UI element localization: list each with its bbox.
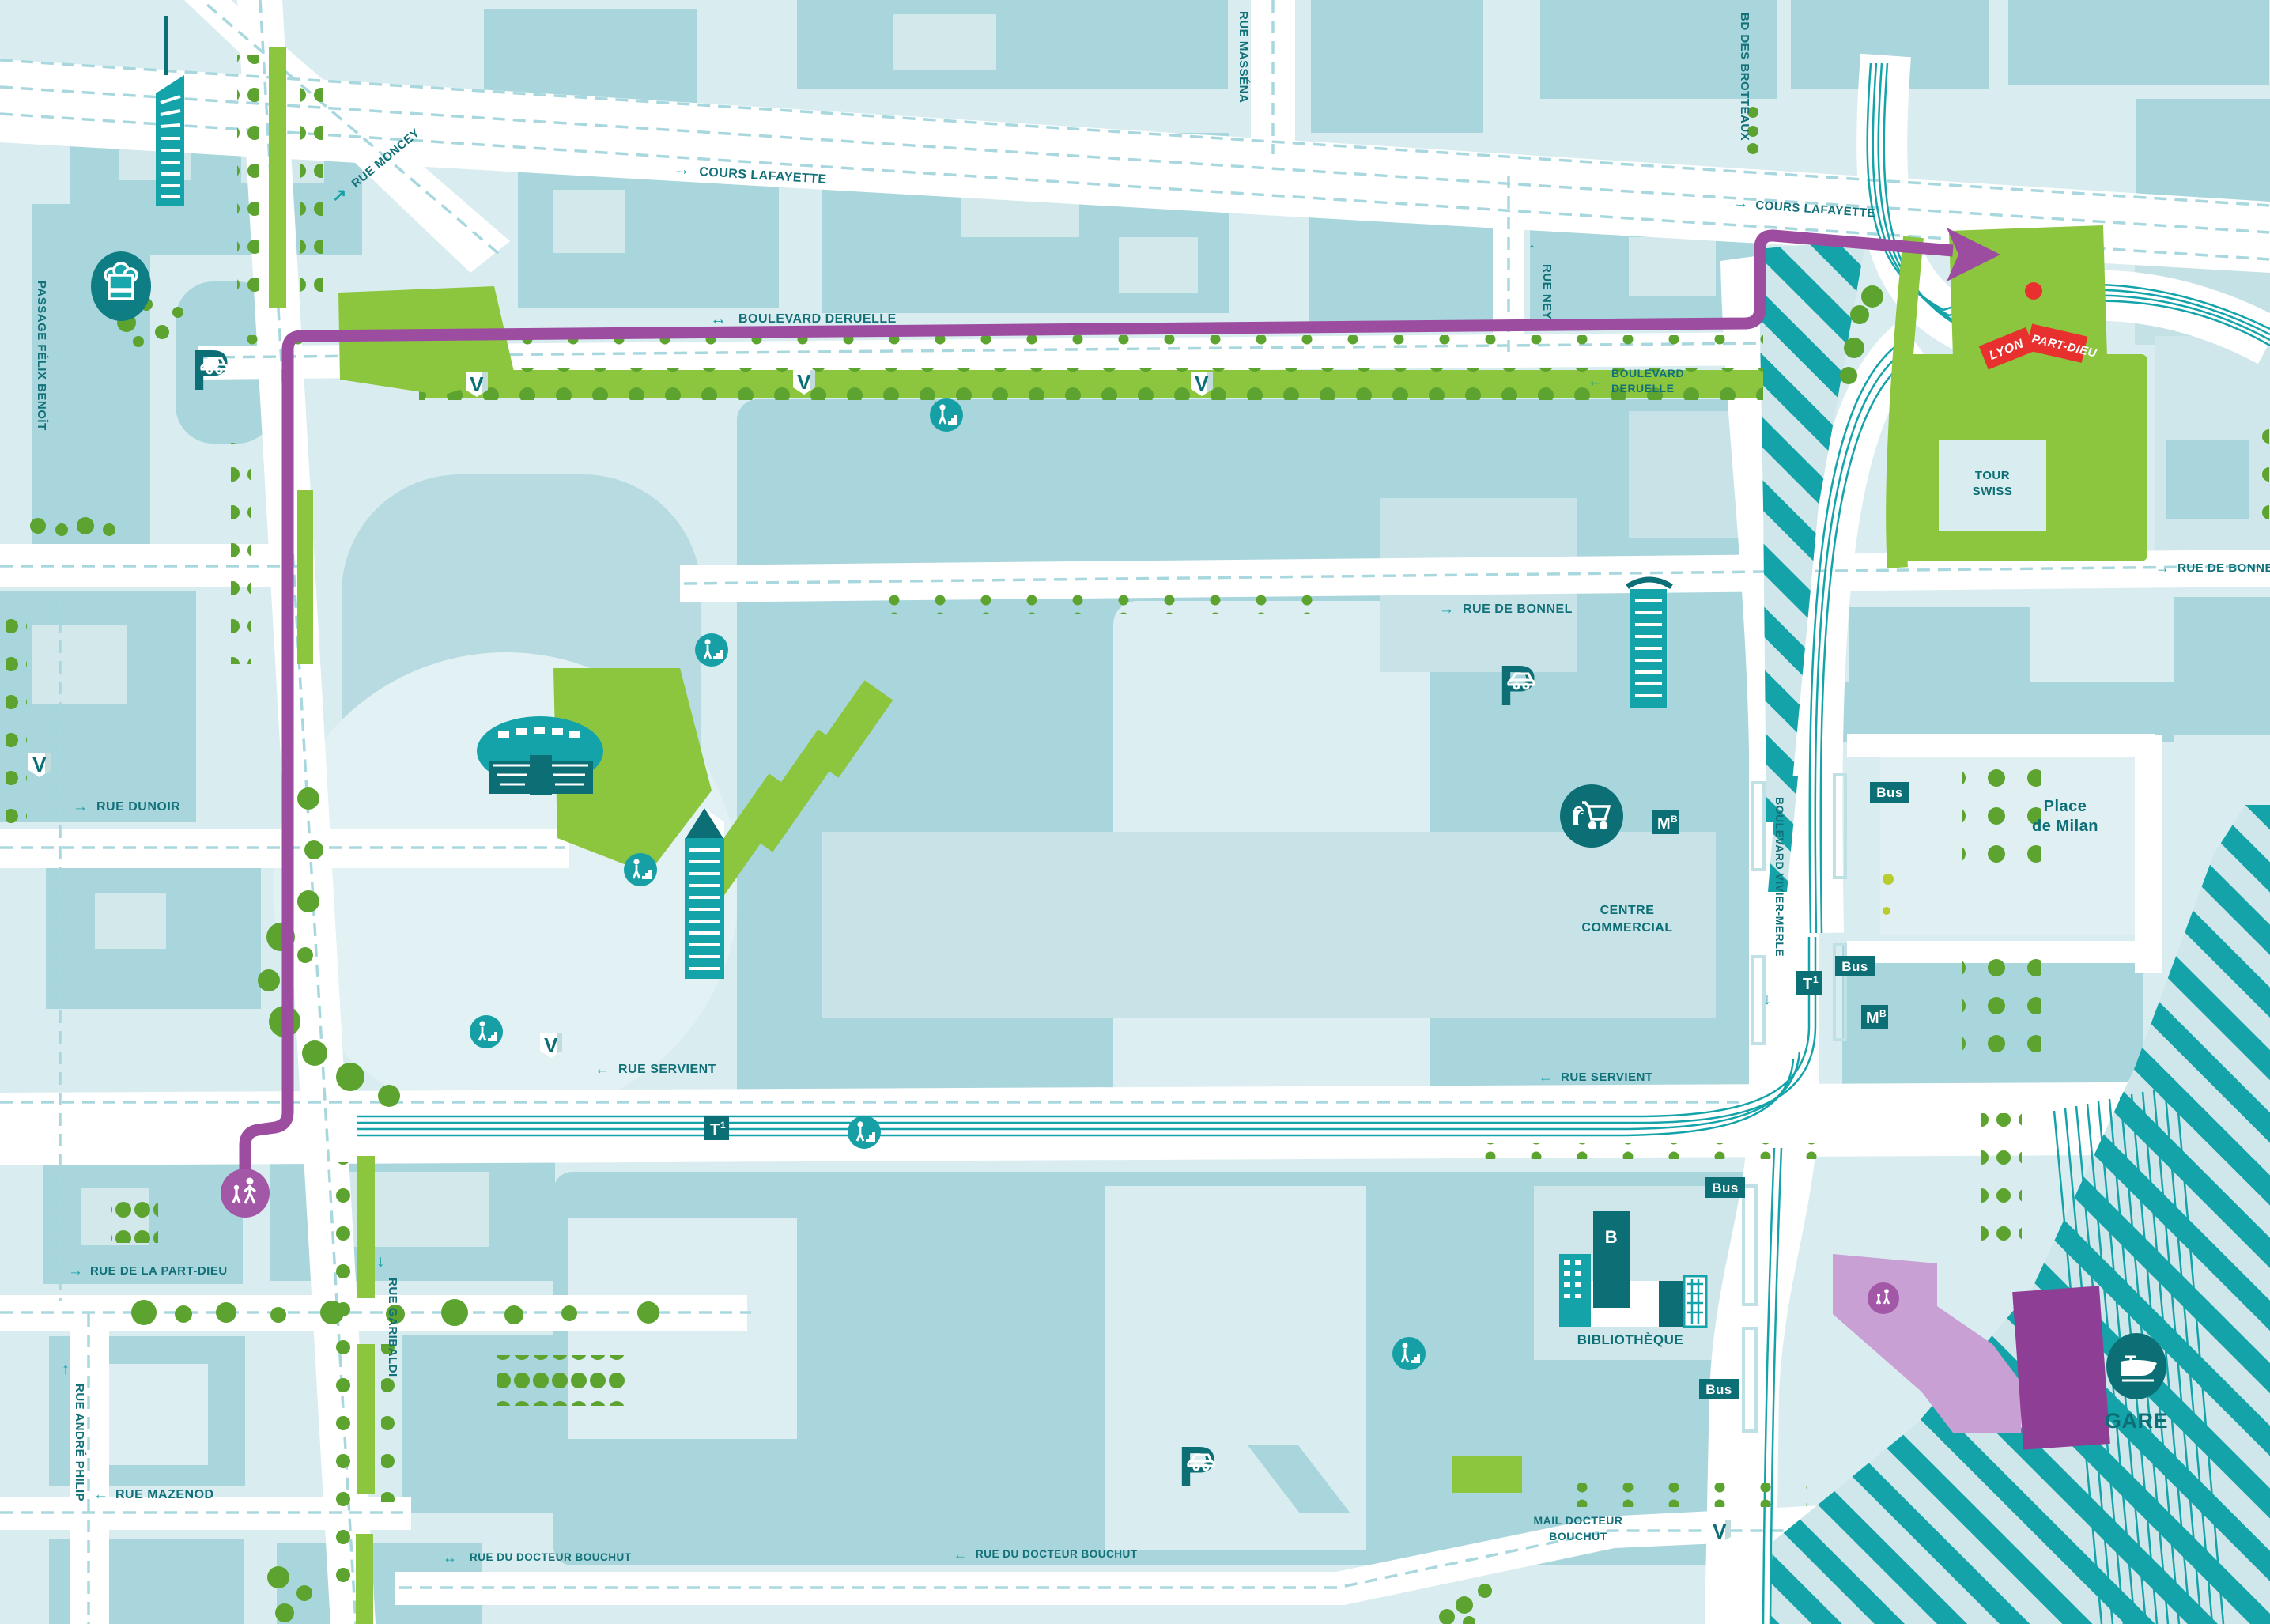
gare-label: GARE: [2105, 1409, 2168, 1433]
arrow-rue-servient-2: ←: [1539, 1069, 1553, 1085]
label-rue-andre-philip: RUE ANDRÉ PHILIP: [73, 1384, 86, 1501]
velov-letter: V: [1195, 372, 1209, 395]
pedestrian-stairs-icon: [1392, 1337, 1426, 1370]
arrow-rue-servient-1: ←: [595, 1061, 610, 1078]
lyon-part-dieu-walking-map: B GARE: [0, 0, 2270, 1624]
train-icon: [2106, 1333, 2166, 1399]
velov-letter: V: [544, 1033, 558, 1057]
arrow-rue-garibaldi: ↓: [376, 1252, 385, 1271]
label-boulevard-vivier-merle: BOULEVARD VIVIER-MERLE: [1773, 797, 1786, 957]
label-bd-des-brot­teaux: BD DES BROTTEAUX: [1738, 13, 1751, 141]
parking-icon: P: [1178, 1436, 1217, 1499]
bus-badge: Bus: [1705, 1177, 1745, 1198]
metro-badge: M B: [1861, 1005, 1888, 1029]
pedestrian-stairs-icon: [848, 1116, 881, 1149]
tram-t: T: [710, 1121, 720, 1139]
label-mail-docteur-bouchut-1: MAIL DOCTEUR: [1533, 1514, 1622, 1527]
tram-1: 1: [720, 1120, 726, 1131]
label-rue-garibaldi: RUE GARIBALDI: [386, 1278, 399, 1377]
arrow-rue-moncey: ↗: [332, 185, 346, 205]
label-tour-swiss-2: SWISS: [1973, 485, 2013, 498]
pedestrian-stairs-icon: [624, 853, 657, 886]
velov-letter: V: [32, 753, 47, 776]
label-rue-de-bonnel-2: RUE DE BONNEL: [2177, 561, 2270, 575]
tram-badge: T 1: [704, 1116, 729, 1140]
label-boulevard-deruelle-2b: DERUELLE: [1611, 382, 1674, 395]
parking-p: P: [1498, 655, 1537, 718]
label-rue-ney: RUE NEY: [1540, 264, 1554, 319]
velov-letter: V: [797, 370, 811, 394]
bus-label: Bus: [1876, 785, 1903, 800]
label-rue-du-docteur-bouchut-2: RUE DU DOCTEUR BOUCHUT: [976, 1548, 1138, 1560]
label-passage-felix-benoit: PASSAGE FÉLIX BENOÎT: [35, 281, 49, 431]
arrow-rue-de-la-part-dieu: →: [68, 1263, 83, 1279]
bus-badge: Bus: [1835, 956, 1875, 976]
arrow-rue-ney: ↑: [1528, 239, 1536, 259]
parking-p: P: [1178, 1436, 1217, 1499]
bus-label: Bus: [1712, 1180, 1739, 1195]
corridor-family-icon: [1868, 1282, 1899, 1314]
label-tour-swiss-1: TOUR: [1975, 469, 2010, 482]
pedestrian-stairs-icon: [470, 1015, 503, 1048]
arrow-rue-du-docteur-bouchut-1: ↔: [443, 1550, 457, 1565]
label-rue-de-la-part-dieu: RUE DE LA PART-DIEU: [90, 1264, 228, 1278]
label-rue-mazenod: RUE MAZENOD: [115, 1488, 214, 1501]
label-boulevard-deruelle-1: BOULEVARD DERUELLE: [738, 312, 897, 326]
arrow-rue-du-docteur-bouchut-2: ←: [954, 1547, 967, 1562]
label-rue-massena: RUE MASSÉNA: [1237, 11, 1250, 103]
bus-label: Bus: [1841, 959, 1868, 974]
arrow-cours-lafayette-2: →: [1733, 195, 1749, 212]
arrow-boulevard-deruelle-1: ↔: [710, 310, 727, 328]
shopping-cart-icon: [1560, 784, 1623, 848]
tram-t: T: [1803, 976, 1813, 993]
route-start-family-icon: [221, 1169, 270, 1218]
bus-badge: Bus: [1699, 1379, 1739, 1399]
label-centre-commercial-2: COMMERCIAL: [1581, 921, 1672, 935]
velov-letter: V: [1713, 1520, 1727, 1543]
label-bibliotheque: BIBLIOTHÈQUE: [1577, 1332, 1683, 1347]
pedestrian-stairs-icon: [930, 398, 963, 432]
arrow-rue-de-bonnel-1: →: [1439, 601, 1454, 617]
restaurant-icon: [91, 251, 151, 321]
parking-icon: P: [191, 339, 230, 402]
label-rue-de-bonnel-1: RUE DE BONNEL: [1463, 602, 1573, 616]
red-dot-marker: [2025, 282, 2042, 300]
auditorium-icon: [477, 716, 603, 795]
label-centre-commercial-1: CENTRE: [1600, 904, 1655, 917]
metro-b: B: [1671, 814, 1678, 825]
metro-b: B: [1879, 1008, 1887, 1019]
arrow-boulevard-deruelle-2: ←: [1588, 373, 1603, 390]
arrow-rue-andre-philip: ↑: [62, 1361, 70, 1378]
metro-badge: M B: [1652, 810, 1679, 834]
arrow-rue-dunoir: →: [73, 799, 88, 815]
label-boulevard-deruelle-2a: BOULEVARD: [1611, 367, 1684, 380]
arrow-rue-de-bonnel-2: →: [2155, 560, 2170, 576]
pedestrian-stairs-icon: [695, 633, 728, 667]
tram-badge: T 1: [1796, 971, 1822, 995]
label-rue-servient-1: RUE SERVIENT: [618, 1063, 716, 1076]
arrow-cours-lafayette-1: →: [674, 161, 690, 179]
label-rue-servient-2: RUE SERVIENT: [1561, 1071, 1653, 1084]
label-rue-du-docteur-bouchut-1: RUE DU DOCTEUR BOUCHUT: [470, 1551, 632, 1563]
velov-letter: V: [470, 372, 484, 396]
arrow-rue-mazenod: ←: [93, 1486, 108, 1503]
label-mail-docteur-bouchut-2: BOUCHUT: [1549, 1530, 1607, 1543]
label-place-de-milan-2: de Milan: [2032, 818, 2098, 835]
parking-icon: P: [1498, 655, 1537, 718]
tour-part-dieu-icon: [685, 808, 724, 979]
tour-oxygene-icon: [1627, 580, 1671, 708]
label-rue-dunoir: RUE DUNOIR: [96, 800, 180, 814]
label-place-de-milan-1: Place: [2044, 798, 2087, 815]
tram-1: 1: [1813, 974, 1819, 985]
bus-badge: Bus: [1870, 782, 1909, 803]
parking-p: P: [191, 339, 230, 402]
library-b-letter: B: [1605, 1227, 1618, 1247]
bus-label: Bus: [1705, 1382, 1732, 1397]
metro-m: M: [1866, 1010, 1879, 1027]
station-building: [2012, 1286, 2110, 1449]
metro-m: M: [1657, 815, 1671, 833]
arrow-boulevard-vivier-merle: ↓: [1763, 991, 1771, 1008]
